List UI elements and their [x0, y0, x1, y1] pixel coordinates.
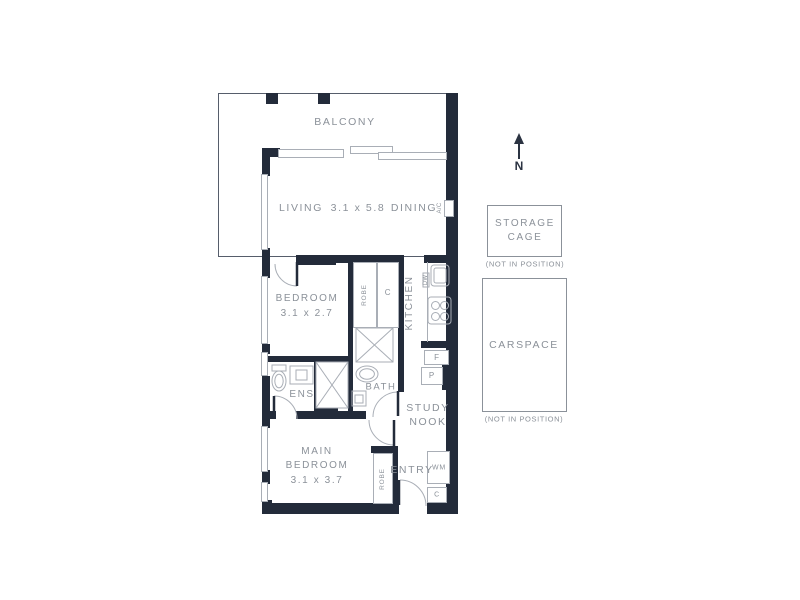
toilet-bowl — [275, 374, 283, 388]
bathtub-inner — [360, 369, 375, 379]
dishwasher-label: DW — [423, 275, 429, 286]
cooktop-burner — [432, 302, 440, 310]
kitchen-label: KITCHEN — [405, 275, 415, 330]
carspace-note: (NOT IN POSITION) — [485, 415, 563, 423]
living-dims: 3.1 x 5.8 — [331, 203, 386, 214]
ens-label: ENS — [289, 390, 314, 400]
toilet-cistern — [272, 365, 286, 371]
cooktop-burner — [432, 313, 440, 321]
bedroom-dims: 3.1 x 2.7 — [281, 309, 334, 319]
vanity-ens — [290, 366, 313, 384]
storage-cage-note: (NOT IN POSITION) — [486, 260, 564, 268]
cooktop-icon — [428, 297, 451, 324]
door-arc-entry — [400, 480, 426, 506]
bedroom-label: BEDROOM — [276, 294, 339, 304]
bath-label: BATH — [365, 382, 396, 392]
door-arc-main-bedroom — [369, 420, 394, 445]
entry-label: ENTRY — [390, 465, 433, 476]
floor-plan: BALCONY LIVING 3.1 x 5.8 DINING A/C BEDR… — [0, 0, 800, 600]
storage-cage-label-2: CAGE — [508, 233, 543, 243]
study-nook-label-2: NOOK — [409, 417, 446, 428]
cupboard-hall-label: C — [385, 289, 392, 297]
pantry-label: P — [429, 372, 435, 380]
door-arc-bedroom — [275, 264, 297, 286]
carspace-label: CARSPACE — [489, 340, 559, 351]
cupboard-entry-label: C — [434, 492, 440, 499]
plan-linework — [0, 0, 800, 600]
door-arc-bath — [373, 392, 398, 417]
fridge-label: F — [434, 354, 440, 362]
cooktop-burner — [441, 302, 449, 310]
north-label: N — [515, 160, 524, 172]
main-bedroom-dims: 3.1 x 3.7 — [291, 476, 344, 486]
kitchen-sink-bowl — [434, 268, 446, 283]
ac-label: A/C — [437, 203, 443, 214]
main-bedroom-label-1: MAIN — [301, 447, 332, 457]
balcony-label: BALCONY — [314, 117, 375, 128]
dining-label: DINING — [391, 203, 437, 214]
north-arrow-icon — [514, 133, 524, 159]
washing-machine-label: WM — [432, 465, 446, 472]
robe-bedroom-label: ROBE — [362, 284, 369, 306]
storage-cage-label-1: STORAGE — [495, 219, 555, 229]
cooktop-burner — [441, 313, 449, 321]
living-label: LIVING — [279, 203, 323, 214]
vanity-basin — [355, 395, 363, 403]
vanity-bath — [352, 391, 366, 406]
storage-cage-outline — [487, 205, 562, 257]
robe-main-label: ROBE — [380, 468, 387, 490]
vanity-basin — [296, 370, 307, 380]
main-bedroom-label-2: BEDROOM — [286, 461, 349, 471]
study-nook-label-1: STUDY — [406, 403, 450, 414]
